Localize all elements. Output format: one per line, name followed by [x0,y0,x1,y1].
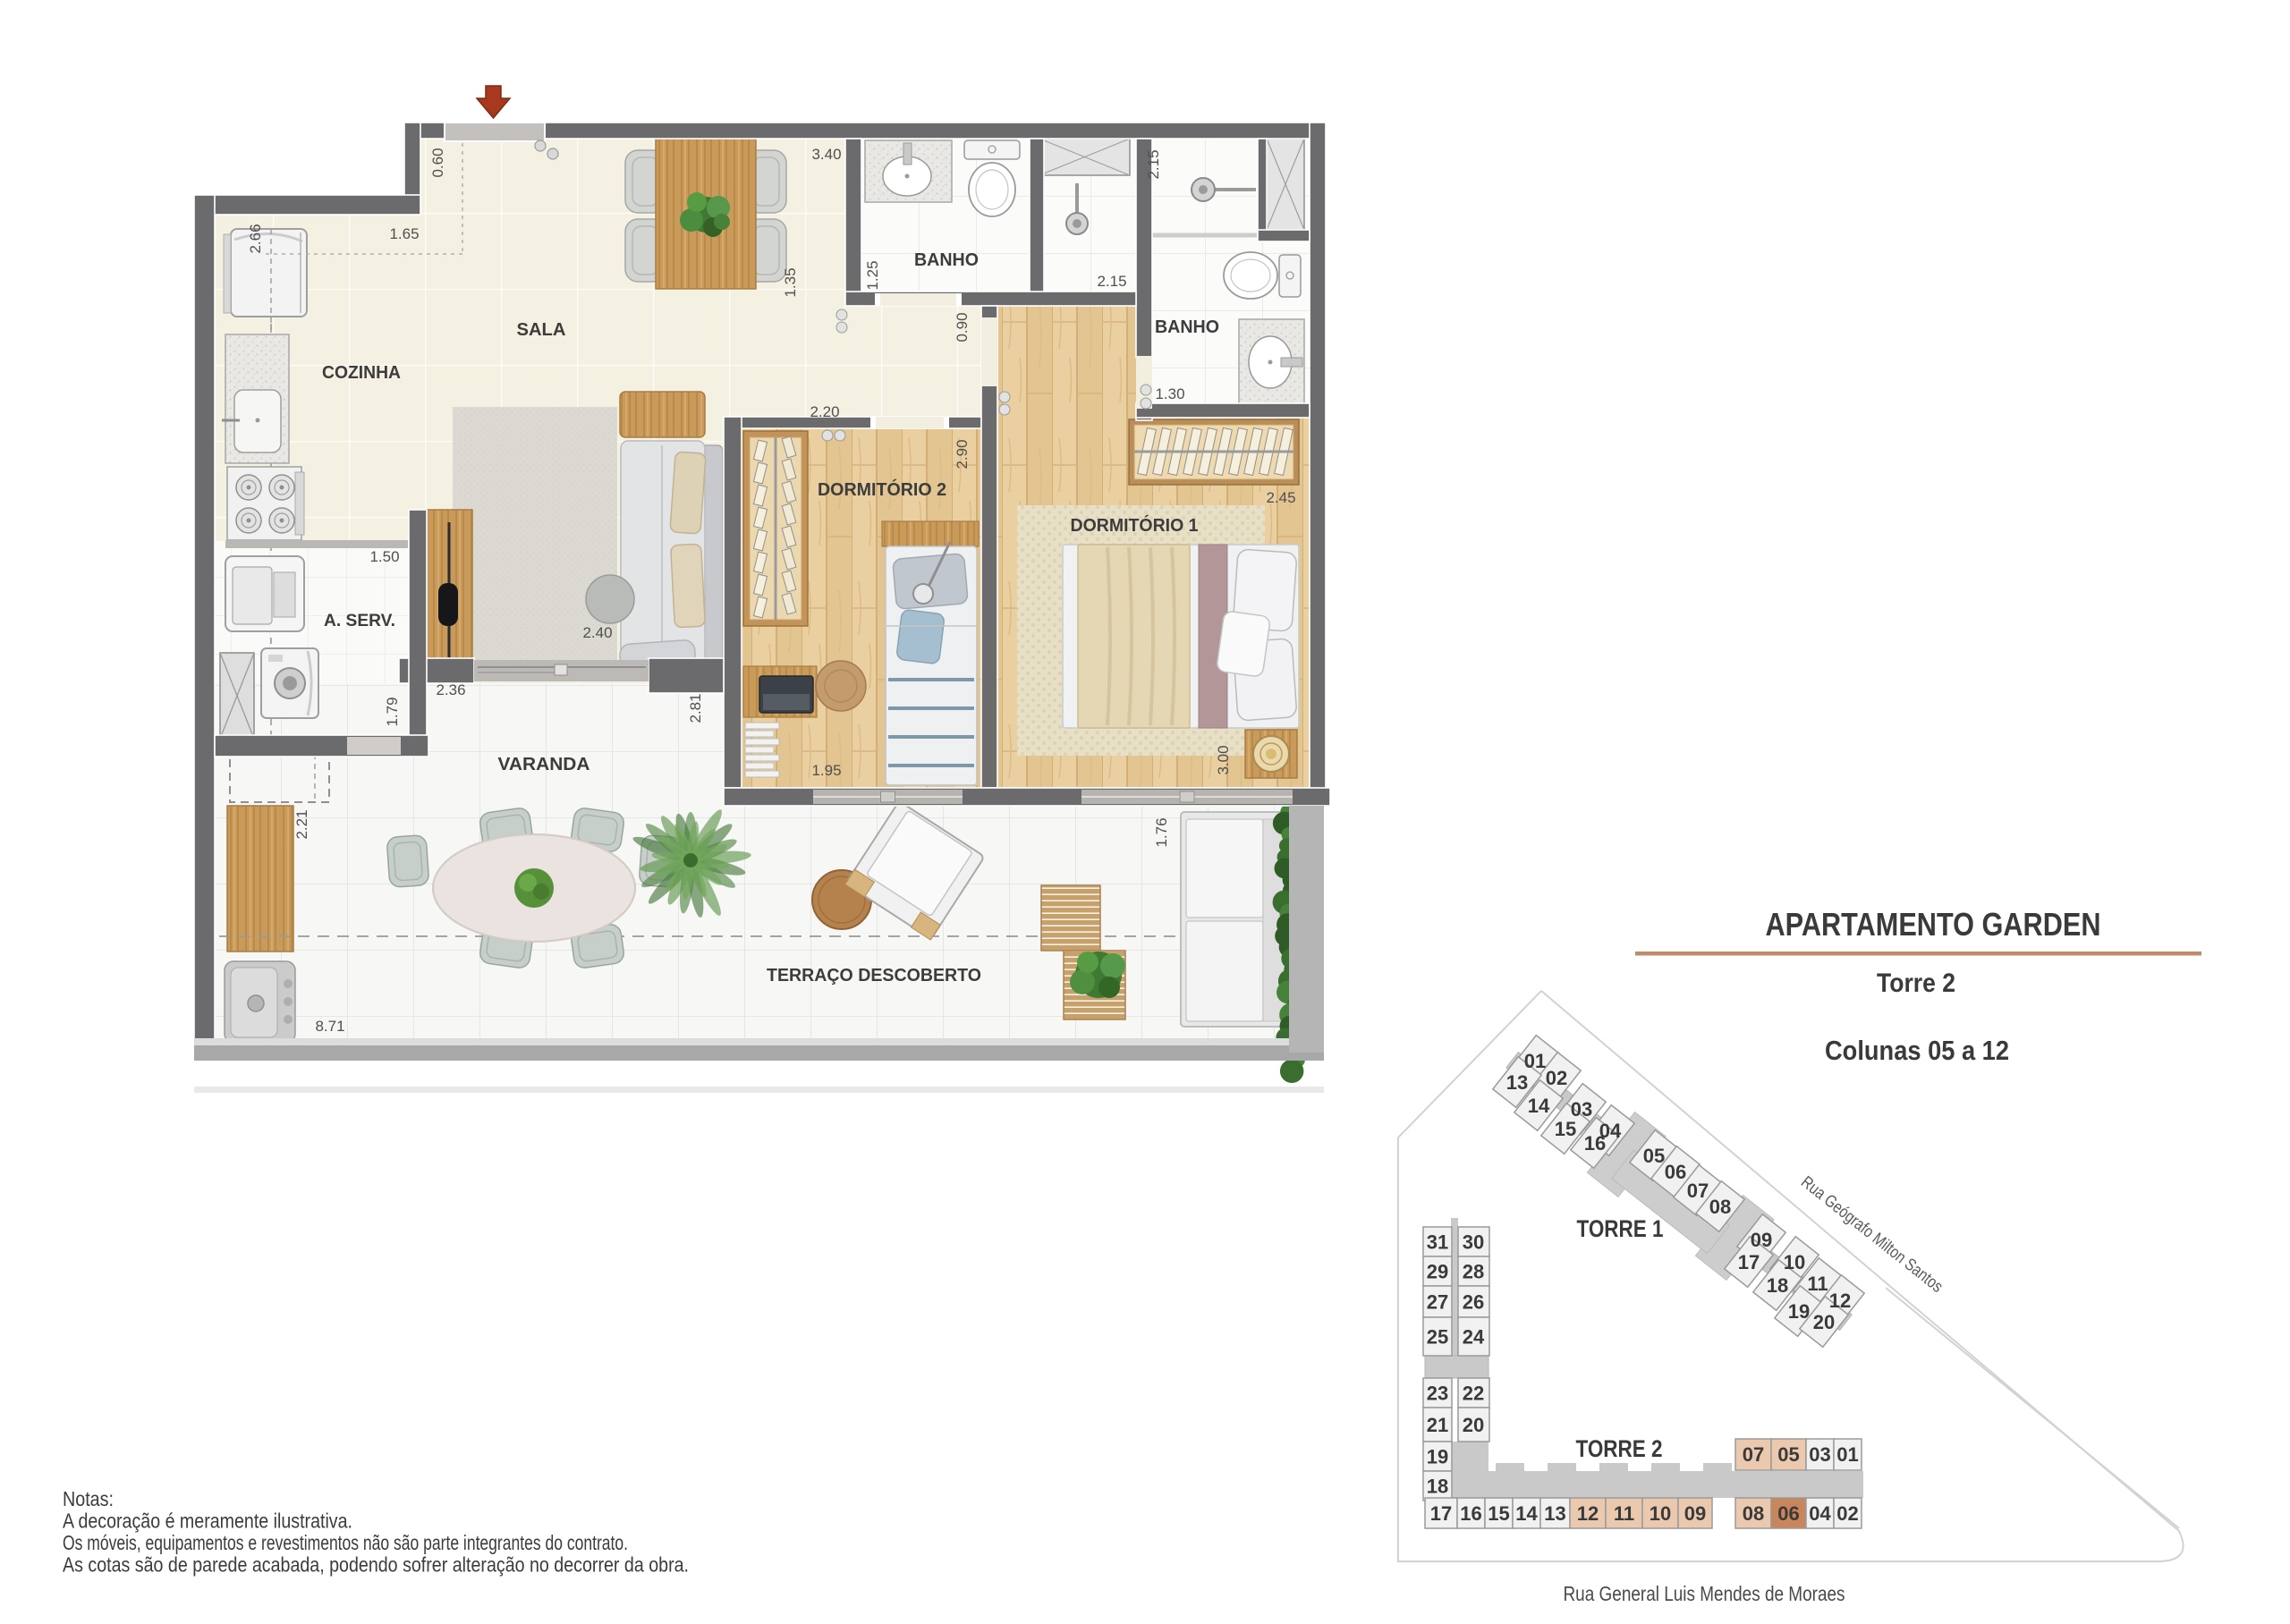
svg-text:23: 23 [1427,1383,1448,1405]
svg-text:2.15: 2.15 [1097,273,1126,290]
svg-text:01: 01 [1836,1443,1858,1466]
svg-text:0.90: 0.90 [954,312,971,342]
svg-text:02: 02 [1836,1502,1858,1525]
svg-text:09: 09 [1684,1502,1706,1525]
svg-text:11: 11 [1807,1273,1828,1295]
svg-text:19: 19 [1427,1446,1448,1468]
svg-text:Os móveis, equipamentos e reve: Os móveis, equipamentos e revestimentos … [63,1531,628,1554]
svg-text:2.81: 2.81 [687,693,704,723]
svg-text:2.45: 2.45 [1266,489,1295,506]
svg-text:14: 14 [1515,1502,1538,1525]
svg-text:07: 07 [1743,1443,1764,1466]
svg-text:12: 12 [1577,1502,1599,1525]
svg-text:14: 14 [1528,1095,1550,1117]
svg-text:TERRAÇO DESCOBERTO: TERRAÇO DESCOBERTO [767,966,981,985]
svg-text:07: 07 [1687,1180,1709,1202]
svg-text:17: 17 [1738,1251,1760,1273]
svg-text:05: 05 [1643,1145,1665,1167]
svg-text:09: 09 [1751,1229,1772,1251]
svg-text:03: 03 [1809,1443,1830,1466]
svg-text:Rua General Luis Mendes de Mor: Rua General Luis Mendes de Moraes [1564,1582,1845,1605]
svg-text:APARTAMENTO GARDEN: APARTAMENTO GARDEN [1766,906,2101,943]
svg-text:2.20: 2.20 [810,403,839,420]
svg-text:01: 01 [1524,1050,1546,1072]
svg-text:24: 24 [1463,1326,1485,1349]
svg-text:BANHO: BANHO [1155,317,1219,337]
svg-text:11: 11 [1614,1502,1634,1525]
svg-text:12: 12 [1829,1290,1851,1312]
svg-text:COZINHA: COZINHA [322,363,401,383]
svg-text:2.66: 2.66 [247,224,264,253]
svg-text:1.65: 1.65 [389,225,419,242]
svg-text:VARANDA: VARANDA [498,755,590,774]
svg-text:2.21: 2.21 [293,809,310,839]
svg-text:18: 18 [1767,1274,1788,1297]
svg-text:A. SERV.: A. SERV. [324,612,395,630]
svg-text:22: 22 [1463,1383,1484,1405]
svg-text:27: 27 [1427,1291,1448,1314]
svg-text:25: 25 [1427,1326,1448,1349]
svg-text:08: 08 [1743,1502,1764,1525]
svg-text:Torre 2: Torre 2 [1877,968,1955,998]
svg-text:04: 04 [1809,1502,1831,1525]
svg-text:28: 28 [1463,1261,1484,1283]
svg-text:1.35: 1.35 [782,267,799,297]
svg-text:20: 20 [1463,1414,1484,1436]
svg-text:30: 30 [1463,1231,1484,1254]
svg-text:1.30: 1.30 [1155,385,1184,402]
svg-text:TORRE 1: TORRE 1 [1577,1215,1664,1242]
svg-text:Notas:: Notas: [63,1487,114,1510]
svg-text:08: 08 [1709,1196,1731,1218]
svg-text:2.40: 2.40 [582,624,612,641]
svg-text:10: 10 [1784,1251,1805,1273]
svg-text:SALA: SALA [517,320,566,340]
svg-text:16: 16 [1460,1502,1481,1525]
svg-text:21: 21 [1427,1414,1448,1436]
svg-text:8.71: 8.71 [315,1018,344,1035]
svg-text:31: 31 [1427,1231,1448,1254]
svg-text:19: 19 [1788,1300,1810,1323]
svg-text:29: 29 [1427,1261,1448,1283]
svg-text:0.60: 0.60 [429,148,446,177]
svg-text:06: 06 [1777,1502,1799,1525]
svg-text:A decoração é meramente ilustr: A decoração é meramente ilustrativa. [63,1510,352,1533]
svg-text:20: 20 [1813,1311,1835,1333]
svg-text:17: 17 [1430,1502,1452,1525]
svg-text:1.95: 1.95 [811,762,841,779]
svg-text:DORMITÓRIO 2: DORMITÓRIO 2 [818,478,946,500]
svg-text:TORRE 2: TORRE 2 [1576,1435,1663,1462]
svg-text:16: 16 [1584,1132,1606,1155]
svg-text:2.15: 2.15 [1145,149,1162,179]
svg-text:BANHO: BANHO [914,250,979,270]
svg-text:02: 02 [1546,1067,1567,1089]
svg-text:13: 13 [1506,1071,1528,1094]
svg-text:1.50: 1.50 [369,548,399,565]
svg-text:05: 05 [1777,1443,1799,1466]
svg-text:3.40: 3.40 [811,146,841,163]
svg-text:06: 06 [1665,1161,1686,1183]
svg-text:15: 15 [1488,1502,1509,1525]
svg-text:10: 10 [1650,1502,1671,1525]
svg-text:2.90: 2.90 [954,439,971,469]
svg-text:Colunas 05 a 12: Colunas 05 a 12 [1825,1035,2009,1066]
svg-text:15: 15 [1555,1118,1576,1140]
svg-text:1.76: 1.76 [1153,817,1170,847]
svg-text:26: 26 [1463,1291,1484,1314]
svg-text:DORMITÓRIO 1: DORMITÓRIO 1 [1071,514,1199,536]
svg-text:As cotas são de parede acabada: As cotas são de parede acabada, podendo … [63,1553,689,1577]
svg-text:13: 13 [1544,1502,1565,1525]
svg-text:3.00: 3.00 [1215,745,1232,774]
svg-text:1.79: 1.79 [384,697,401,726]
svg-text:18: 18 [1427,1476,1448,1498]
svg-text:2.36: 2.36 [436,681,465,698]
svg-text:1.25: 1.25 [864,260,881,290]
